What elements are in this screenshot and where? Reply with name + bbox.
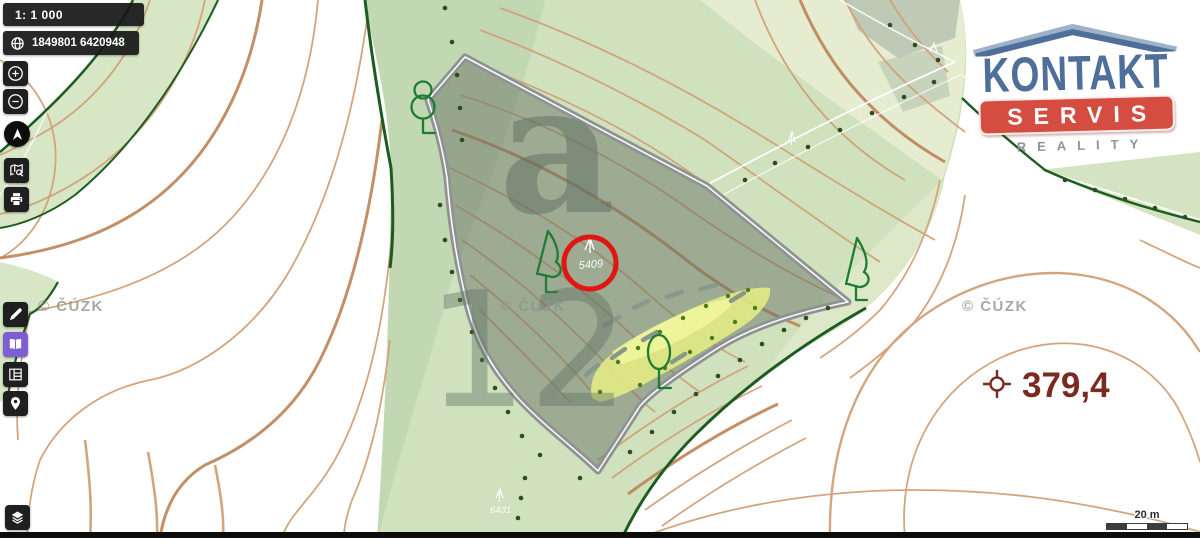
minus-circle-icon [7, 93, 24, 110]
map-scale-indicator: 1: 1 000 [3, 3, 144, 26]
map-application-window: a 12 5409 6431 379,4 © ČÚZK © ČÚZK © ČÚZ… [0, 0, 1200, 538]
measure-button[interactable] [3, 302, 28, 327]
scale-value: 1: 1 000 [15, 8, 63, 22]
pencil-icon [7, 306, 24, 323]
watermark-center: © ČÚZK [500, 297, 566, 315]
legend-panel-icon [7, 366, 24, 383]
compass-button[interactable] [4, 121, 30, 147]
north-arrow-icon [9, 126, 26, 143]
coordinates-value: 1849801 6420948 [32, 37, 125, 49]
globe-icon [10, 36, 25, 51]
map-book-button[interactable] [3, 332, 28, 357]
zoom-in-button[interactable] [3, 61, 28, 86]
plus-circle-icon [7, 65, 24, 82]
logo-subtitle: SERVIS [996, 101, 1158, 128]
watermark-left: © ČÚZK [38, 297, 104, 315]
map-search-icon [8, 162, 25, 179]
highlight-point-label: 5409 [578, 258, 603, 272]
map-scalebar: 20 m [1106, 510, 1188, 530]
bottom-edge-bar [0, 532, 1200, 538]
zoom-out-button[interactable] [3, 89, 28, 114]
elevation-label: 379,4 [1022, 366, 1110, 405]
layers-button[interactable] [5, 505, 30, 530]
print-button[interactable] [4, 187, 29, 212]
layers-icon [9, 509, 26, 526]
scalebar-segments [1106, 523, 1188, 530]
scalebar-label: 20 m [1106, 510, 1188, 521]
logo-title: KONTAKT [973, 47, 1178, 101]
printer-icon [8, 191, 25, 208]
svg-text:6431: 6431 [490, 505, 511, 516]
parcel-letter-label: a [499, 44, 616, 255]
company-logo: KONTAKT SERVIS REALITY [970, 21, 1181, 155]
coordinates-readout: 1849801 6420948 [3, 31, 139, 55]
open-book-icon [7, 336, 24, 353]
watermark-right: © ČÚZK [962, 297, 1028, 315]
search-map-button[interactable] [4, 158, 29, 183]
location-pin-button[interactable] [3, 391, 28, 416]
legend-button[interactable] [3, 362, 28, 387]
location-pin-icon [7, 395, 24, 412]
